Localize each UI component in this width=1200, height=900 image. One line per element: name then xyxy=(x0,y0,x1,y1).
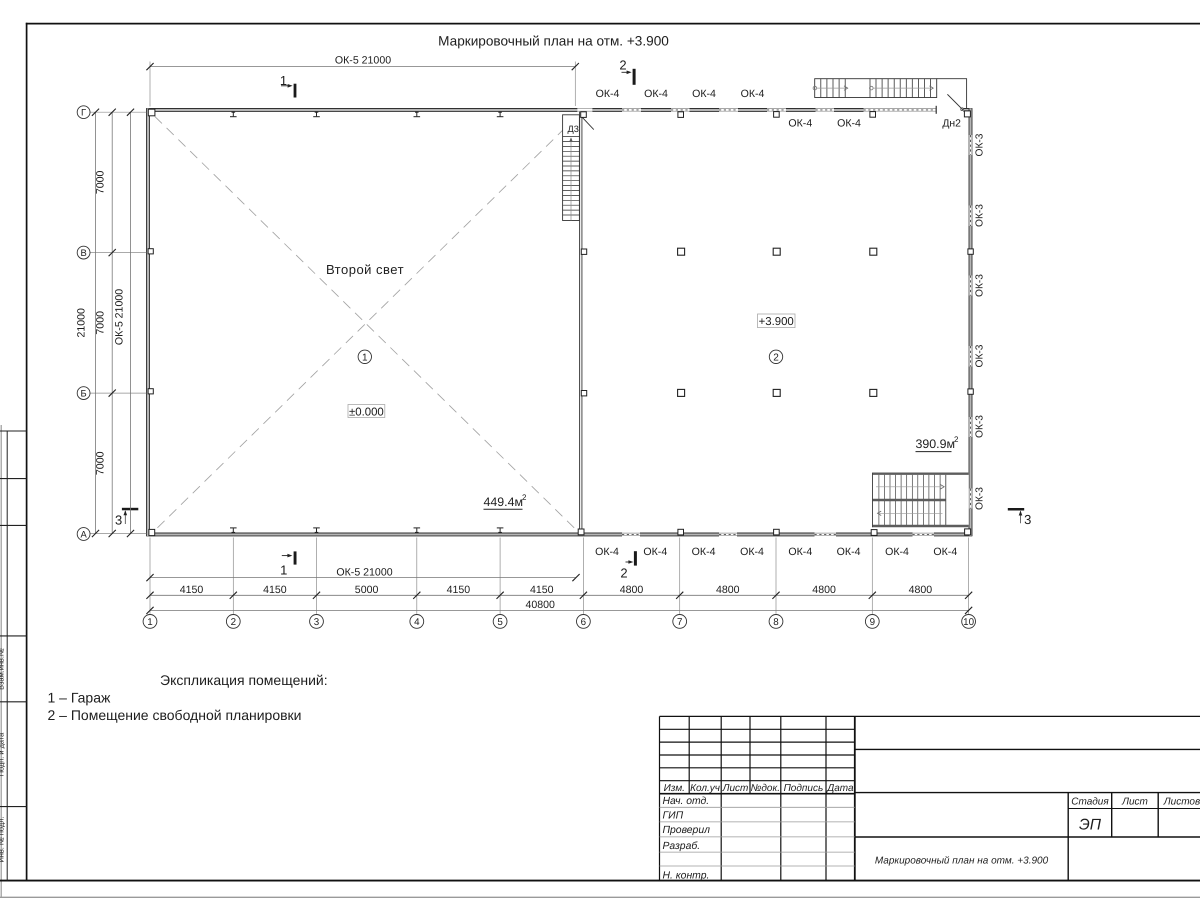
svg-text:ОК-4: ОК-4 xyxy=(933,546,957,558)
svg-text:2: 2 xyxy=(522,493,527,502)
svg-text:ОК-3: ОК-3 xyxy=(974,344,985,367)
svg-text:7000: 7000 xyxy=(95,171,107,195)
svg-text:5000: 5000 xyxy=(355,584,379,596)
svg-text:Второй свет: Второй свет xyxy=(326,262,404,277)
svg-text:3: 3 xyxy=(1024,512,1031,527)
svg-text:4150: 4150 xyxy=(263,584,287,596)
svg-text:7: 7 xyxy=(677,617,682,628)
svg-text:1: 1 xyxy=(362,353,368,364)
svg-text:№док.: №док. xyxy=(751,783,780,794)
svg-text:ЭП: ЭП xyxy=(1079,816,1102,833)
svg-text:ОК-4: ОК-4 xyxy=(885,546,909,558)
svg-text:7000: 7000 xyxy=(95,451,107,475)
svg-text:4: 4 xyxy=(414,617,420,628)
svg-text:1: 1 xyxy=(147,617,152,628)
svg-text:4800: 4800 xyxy=(620,584,644,596)
svg-text:ОК-4: ОК-4 xyxy=(788,118,812,130)
svg-text:Н. контр.: Н. контр. xyxy=(663,871,710,882)
svg-text:ОК-3: ОК-3 xyxy=(974,133,985,156)
svg-text:4150: 4150 xyxy=(530,584,554,596)
svg-text:А: А xyxy=(80,529,87,540)
svg-text:ОК-5 21000: ОК-5 21000 xyxy=(113,289,125,345)
svg-text:±0.000: ±0.000 xyxy=(349,406,384,418)
svg-text:3: 3 xyxy=(314,617,320,628)
svg-text:2: 2 xyxy=(231,617,236,628)
svg-text:449.4м: 449.4м xyxy=(484,495,524,509)
svg-text:ОК-4: ОК-4 xyxy=(692,546,716,558)
svg-text:10: 10 xyxy=(963,617,974,628)
svg-text:Маркировочный план на отм. +3.: Маркировочный план на отм. +3.900 xyxy=(875,855,1049,866)
svg-text:ОК-3: ОК-3 xyxy=(974,204,985,227)
svg-text:Лист: Лист xyxy=(722,783,749,794)
svg-text:Подп. и дата: Подп. и дата xyxy=(0,732,6,776)
svg-text:ГИП: ГИП xyxy=(663,811,684,822)
svg-text:Маркировочный план на отм. +3.: Маркировочный план на отм. +3.900 xyxy=(438,34,669,49)
svg-text:6: 6 xyxy=(581,617,587,628)
svg-text:ОК-5 21000: ОК-5 21000 xyxy=(336,566,392,578)
svg-text:ОК-4: ОК-4 xyxy=(692,88,716,100)
svg-text:8: 8 xyxy=(773,617,779,628)
svg-text:2: 2 xyxy=(619,57,626,72)
svg-text:ОК-3: ОК-3 xyxy=(974,487,985,510)
svg-text:Экспликация помещений:: Экспликация помещений: xyxy=(160,672,328,688)
svg-text:+3.900: +3.900 xyxy=(759,316,794,328)
svg-text:3: 3 xyxy=(115,513,122,528)
svg-text:Б: Б xyxy=(81,388,87,399)
svg-text:5: 5 xyxy=(497,617,503,628)
svg-text:В: В xyxy=(80,247,86,258)
svg-text:4800: 4800 xyxy=(909,584,933,596)
svg-text:ОК-4: ОК-4 xyxy=(741,88,765,100)
svg-text:21000: 21000 xyxy=(75,308,87,338)
svg-text:Д3: Д3 xyxy=(568,124,579,134)
svg-text:2: 2 xyxy=(620,566,627,581)
svg-text:ОК-4: ОК-4 xyxy=(643,546,667,558)
svg-text:Разраб.: Разраб. xyxy=(663,841,701,852)
svg-text:ОК-4: ОК-4 xyxy=(644,88,668,100)
svg-text:Изм.: Изм. xyxy=(664,783,685,794)
svg-text:7000: 7000 xyxy=(95,311,107,335)
svg-text:ОК-4: ОК-4 xyxy=(788,546,812,558)
svg-text:Стадия: Стадия xyxy=(1071,797,1109,808)
svg-text:Г: Г xyxy=(81,107,86,118)
svg-text:Кол.уч: Кол.уч xyxy=(690,783,720,794)
svg-text:Нач. отд.: Нач. отд. xyxy=(663,796,710,807)
svg-text:Проверил: Проверил xyxy=(663,825,711,836)
svg-text:Листов: Листов xyxy=(1163,797,1200,808)
svg-text:40800: 40800 xyxy=(525,599,555,611)
svg-text:ОК-4: ОК-4 xyxy=(740,546,764,558)
svg-text:Дата: Дата xyxy=(826,783,854,794)
svg-text:ОК-4: ОК-4 xyxy=(837,546,861,558)
svg-text:1: 1 xyxy=(280,563,287,578)
svg-text:2: 2 xyxy=(773,353,779,364)
svg-text:ОК-4: ОК-4 xyxy=(837,118,861,130)
svg-text:ОК-3: ОК-3 xyxy=(974,415,985,438)
svg-text:ОК-4: ОК-4 xyxy=(595,546,619,558)
svg-text:Подпись: Подпись xyxy=(784,783,824,794)
svg-text:2 – Помещение свободной планир: 2 – Помещение свободной планировки xyxy=(48,707,302,723)
svg-text:1 – Гараж: 1 – Гараж xyxy=(48,689,112,705)
svg-text:ОК-3: ОК-3 xyxy=(974,274,985,297)
svg-text:4150: 4150 xyxy=(180,584,204,596)
svg-text:2: 2 xyxy=(954,435,959,444)
svg-text:ОК-4: ОК-4 xyxy=(596,88,620,100)
svg-text:390.9м: 390.9м xyxy=(916,437,956,451)
svg-text:ОК-5 21000: ОК-5 21000 xyxy=(335,55,391,67)
svg-text:Лист: Лист xyxy=(1121,797,1148,808)
svg-text:4150: 4150 xyxy=(447,584,471,596)
svg-text:Дн2: Дн2 xyxy=(942,119,961,130)
svg-text:4800: 4800 xyxy=(716,584,740,596)
svg-text:9: 9 xyxy=(870,617,875,628)
svg-text:4800: 4800 xyxy=(812,584,836,596)
svg-text:Инв. № подл.: Инв. № подл. xyxy=(0,816,6,862)
svg-text:Взам.инв.№: Взам.инв.№ xyxy=(0,648,6,690)
